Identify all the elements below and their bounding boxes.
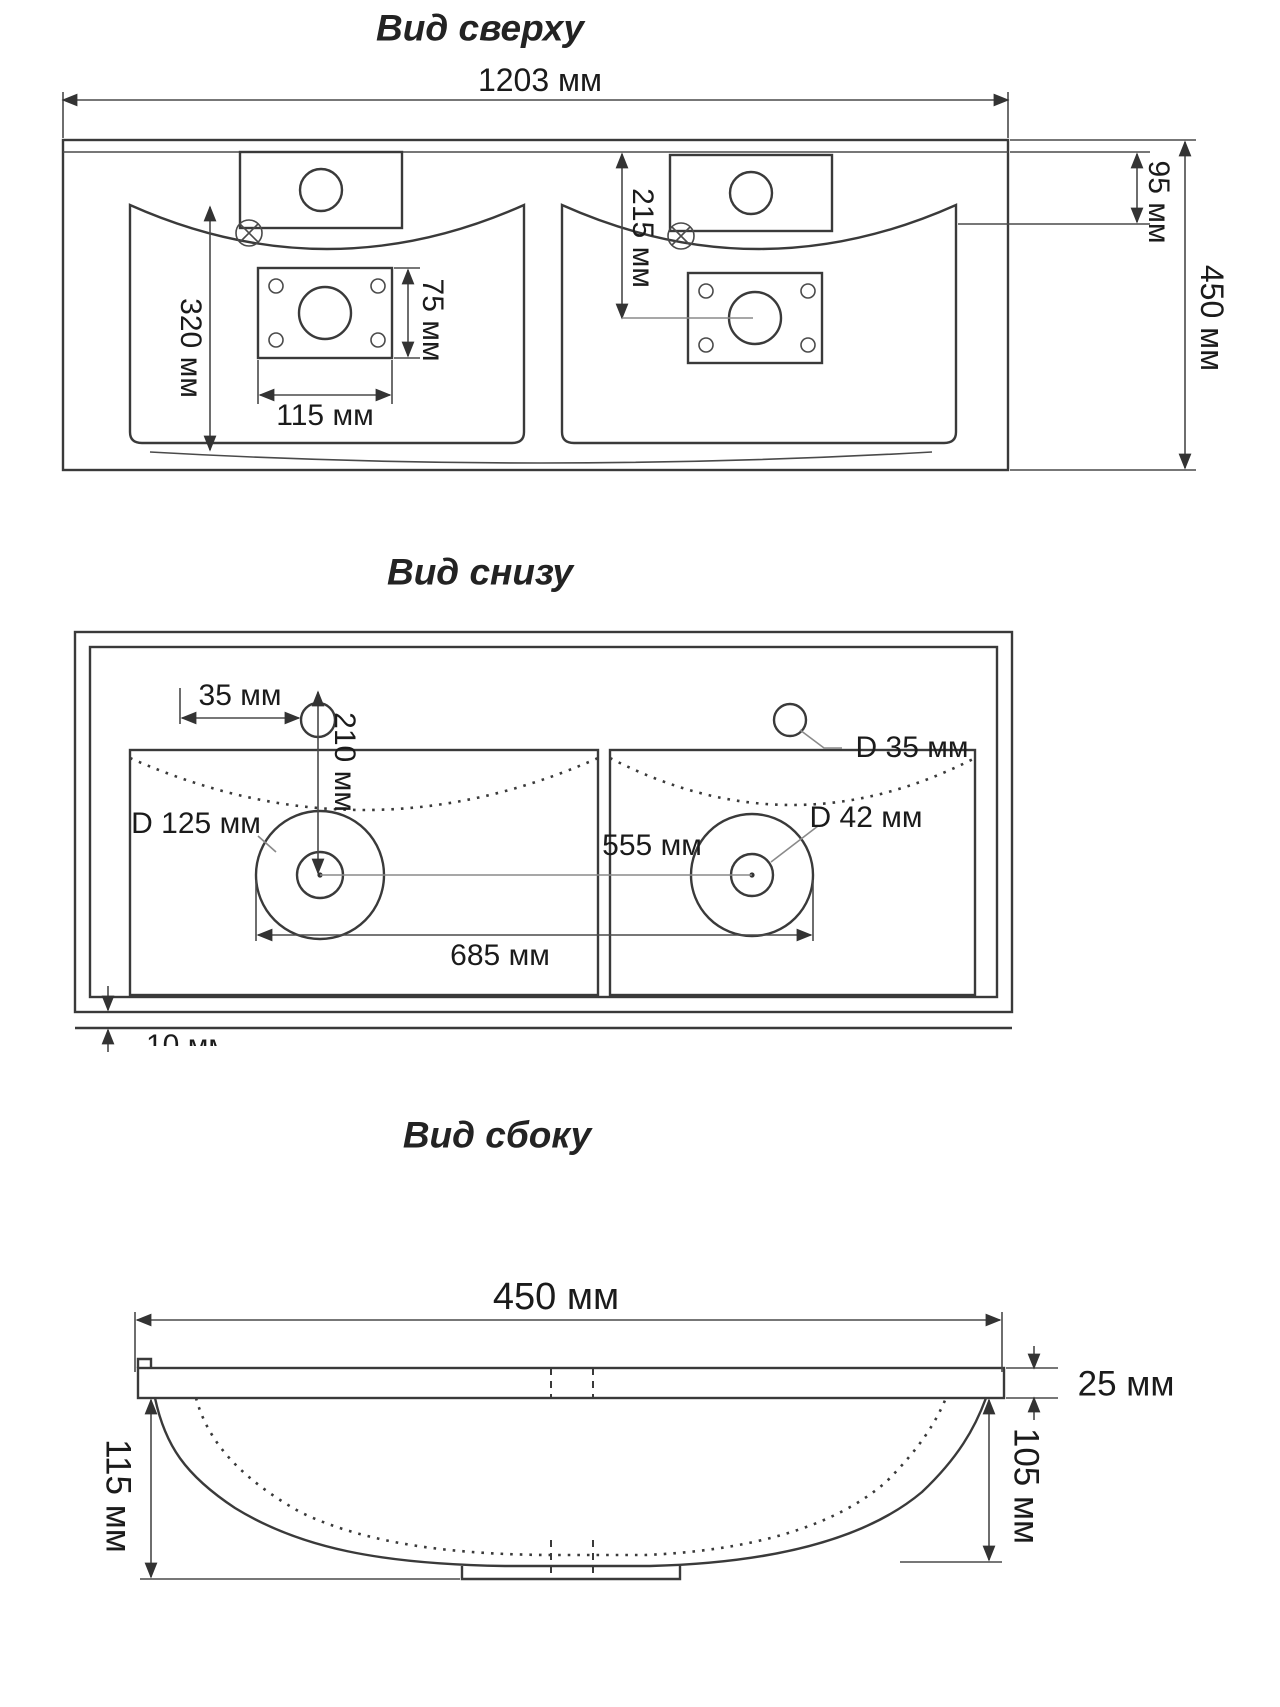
left-basin-curve-hidden: [130, 758, 598, 810]
left-faucet-box: [240, 152, 402, 228]
technical-drawing-page: Вид сверху 1203 мм 450 мм 95 мм 215 мм 3…: [0, 0, 1280, 1707]
dim-recess-diameter: D 125 мм: [131, 809, 261, 839]
right-faucet-box: [670, 155, 832, 231]
d35-leader: [800, 730, 842, 748]
dim-recess-outer-span: 685 мм: [450, 941, 550, 971]
dim-drain-spacing: 555 мм: [602, 831, 702, 861]
right-basin-curve-hidden: [610, 758, 975, 805]
right-faucet-hole: [730, 172, 772, 214]
rim-profile: [138, 1368, 1004, 1398]
front-edge-arc: [150, 452, 932, 463]
dim-back-to-basin: 95 мм: [1143, 161, 1173, 244]
dim-basin-length: 320 мм: [175, 298, 205, 398]
dim-overall-width: 1203 мм: [478, 64, 602, 96]
bottom-view-title: Вид снизу: [387, 554, 573, 591]
bowl-outer-profile: [155, 1398, 986, 1566]
dim-overall-depth: 450 мм: [1196, 265, 1228, 371]
rim-centerline: [551, 1368, 593, 1398]
dim-faucet-hole-diameter: D 35 мм: [856, 733, 969, 763]
dim-faucet-to-drain: 210 мм: [329, 712, 359, 812]
dim-drain-hole-diameter: D 42 мм: [810, 803, 923, 833]
side-view-drawing: [135, 1312, 1058, 1579]
drain-stub: [462, 1566, 680, 1579]
dim-drain-from-back: 215 мм: [627, 188, 657, 288]
overflow-icon: [668, 223, 694, 249]
top-view-title: Вид сверху: [376, 10, 584, 47]
dim-side-depth: 450 мм: [493, 1278, 619, 1316]
side-view-title: Вид сбоку: [403, 1117, 591, 1154]
side-view-dimensions: [135, 1312, 1058, 1579]
dim-plate-width: 115 мм: [276, 401, 373, 431]
left-drain-hole: [299, 287, 351, 339]
dim-bowl-depth: 105 мм: [1009, 1428, 1044, 1544]
right-basin-mold: [610, 750, 975, 995]
left-faucet-hole: [300, 169, 342, 211]
stub-centerline: [551, 1540, 593, 1579]
dim-rim-thickness: 25 мм: [1078, 1367, 1175, 1402]
left-mounting-plate: [258, 268, 392, 358]
dim-edge-thickness-clipped: 10 мм: [146, 1031, 220, 1046]
dim-overall-height: 115 мм: [101, 1439, 136, 1553]
bowl-inner-profile-hidden: [196, 1398, 946, 1555]
dim-plate-height: 75 мм: [417, 279, 447, 362]
right-basin-outline: [562, 205, 956, 443]
rim-left-tab: [138, 1359, 151, 1368]
dim-faucet-offset: 35 мм: [199, 681, 282, 711]
